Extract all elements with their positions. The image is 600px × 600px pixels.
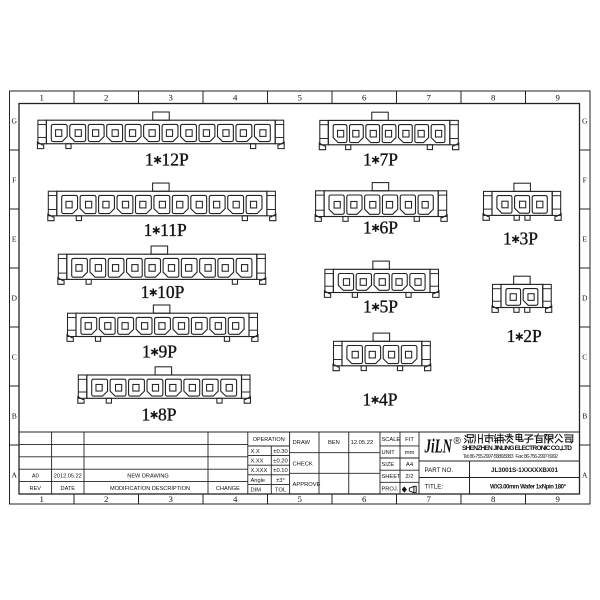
svg-text:1: 1	[40, 494, 44, 504]
svg-text:1: 1	[144, 220, 153, 240]
svg-text:CHECK: CHECK	[293, 462, 313, 468]
svg-text:3: 3	[169, 93, 174, 103]
svg-text:11P: 11P	[160, 220, 187, 240]
svg-text:5: 5	[298, 93, 303, 103]
svg-text:1: 1	[363, 217, 372, 237]
svg-text:DATE: DATE	[61, 486, 76, 492]
svg-text:2: 2	[104, 494, 108, 504]
svg-text:X.XX: X.XX	[251, 459, 264, 465]
svg-text:SHENZHEN JINLING ELECTRONIC CO: SHENZHEN JINLING ELECTRONIC CO.,LTD	[462, 445, 572, 452]
svg-text:BEN: BEN	[328, 440, 340, 446]
svg-text:C: C	[582, 352, 587, 361]
svg-text:A4: A4	[406, 462, 414, 468]
svg-text:E: E	[582, 234, 587, 243]
svg-text:UNIT: UNIT	[382, 450, 396, 456]
svg-text:8: 8	[491, 93, 496, 103]
svg-text:A: A	[12, 470, 18, 479]
svg-text:REV: REV	[30, 486, 42, 492]
svg-text:SHEET: SHEET	[382, 474, 401, 480]
svg-text:PART NO.: PART NO.	[425, 467, 454, 474]
svg-text:2: 2	[104, 93, 108, 103]
svg-text:1: 1	[142, 341, 151, 361]
svg-text:12.05.22: 12.05.22	[351, 440, 374, 446]
svg-text:7: 7	[427, 494, 432, 504]
svg-text:NEW DRAWING: NEW DRAWING	[127, 474, 168, 480]
svg-text:2P: 2P	[523, 326, 542, 346]
svg-text:mm: mm	[405, 450, 415, 456]
svg-text:FIT: FIT	[405, 437, 414, 443]
svg-text:DRAW: DRAW	[293, 440, 311, 446]
svg-text:7: 7	[427, 93, 432, 103]
svg-text:TITLE:: TITLE:	[425, 483, 444, 490]
svg-text:9: 9	[556, 93, 561, 103]
svg-text:1: 1	[503, 229, 512, 249]
svg-text:3P: 3P	[520, 229, 539, 249]
svg-text:1: 1	[141, 404, 150, 424]
svg-text:1: 1	[363, 149, 372, 169]
svg-text:2/2: 2/2	[405, 474, 413, 480]
svg-text:DIM: DIM	[251, 487, 262, 493]
svg-text:E: E	[12, 234, 17, 243]
svg-text:4: 4	[233, 494, 238, 504]
svg-text:12P: 12P	[161, 149, 189, 169]
svg-text:JiLN: JiLN	[424, 436, 453, 458]
svg-text:6: 6	[362, 494, 367, 504]
svg-text:9: 9	[556, 494, 561, 504]
svg-text:5: 5	[298, 494, 303, 504]
svg-text:APPROVE: APPROVE	[293, 482, 321, 488]
svg-text:9P: 9P	[159, 341, 178, 361]
svg-text:JL3001S-1XXXXXBX01: JL3001S-1XXXXXBX01	[491, 467, 558, 474]
svg-text:A0: A0	[32, 474, 39, 480]
svg-text:G: G	[582, 116, 588, 125]
svg-text:SCALE: SCALE	[382, 437, 401, 443]
svg-text:G: G	[12, 116, 18, 125]
svg-text:6P: 6P	[380, 217, 399, 237]
svg-text:±0.30: ±0.30	[273, 449, 287, 455]
svg-text:±0.20: ±0.20	[273, 459, 287, 465]
svg-text:X.XXX: X.XXX	[251, 468, 268, 474]
svg-text:±0.10: ±0.10	[273, 468, 287, 474]
svg-text:1: 1	[141, 282, 150, 302]
svg-text:4P: 4P	[379, 389, 398, 409]
svg-text:7P: 7P	[380, 149, 399, 169]
svg-text:X.X: X.X	[251, 449, 260, 455]
svg-text:Angle: Angle	[251, 478, 266, 484]
svg-text:1: 1	[145, 149, 154, 169]
svg-text:PROJ.: PROJ.	[382, 486, 399, 492]
svg-text:5P: 5P	[380, 296, 399, 316]
svg-text:1: 1	[362, 389, 371, 409]
svg-text:A: A	[582, 470, 588, 479]
svg-text:1: 1	[40, 93, 44, 103]
svg-text:4: 4	[233, 93, 238, 103]
svg-text:1: 1	[507, 326, 516, 346]
svg-text:8: 8	[491, 494, 496, 504]
svg-text:F: F	[12, 175, 16, 184]
svg-text:8P: 8P	[158, 404, 177, 424]
svg-text:±3°: ±3°	[276, 478, 285, 484]
svg-text:C: C	[12, 352, 17, 361]
svg-text:B: B	[12, 411, 17, 420]
svg-text:6: 6	[362, 93, 367, 103]
svg-text:Tel: 86-755-2997-5886/5883 F: Tel: 86-755-2997-5886/5883 Fax: 86-756-2…	[463, 454, 558, 460]
svg-text:10P: 10P	[157, 282, 185, 302]
svg-text:1: 1	[363, 296, 372, 316]
svg-text:OPERATION: OPERATION	[253, 437, 285, 443]
svg-text:®: ®	[454, 436, 462, 447]
svg-text:SIZE: SIZE	[382, 462, 395, 468]
svg-text:2012.05.22: 2012.05.22	[54, 474, 82, 480]
svg-text:D: D	[12, 293, 18, 302]
svg-text:F: F	[583, 175, 587, 184]
svg-text:B: B	[582, 411, 587, 420]
svg-text:MODIFICATION DESCRIPTION: MODIFICATION DESCRIPTION	[110, 486, 190, 492]
svg-text:TOL: TOL	[275, 487, 287, 493]
svg-text:3: 3	[169, 494, 174, 504]
svg-text:CHANGE: CHANGE	[216, 486, 240, 492]
svg-text:D: D	[582, 293, 588, 302]
svg-text:WX3.00mm Wafer 1xNpin 180°: WX3.00mm Wafer 1xNpin 180°	[490, 484, 567, 490]
